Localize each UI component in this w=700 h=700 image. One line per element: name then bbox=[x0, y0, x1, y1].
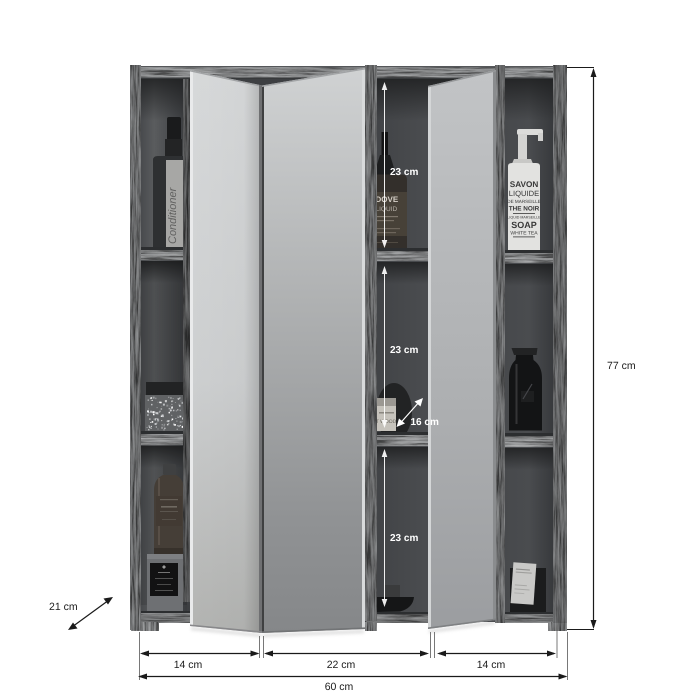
svg-text:SOAP: SOAP bbox=[511, 220, 537, 230]
svg-text:21 cm: 21 cm bbox=[49, 601, 78, 613]
svg-text:77 cm: 77 cm bbox=[607, 360, 636, 372]
svg-text:LIQUIDE: LIQUIDE bbox=[509, 189, 539, 198]
svg-text:14 cm: 14 cm bbox=[174, 659, 203, 671]
svg-text:SAVON: SAVON bbox=[510, 180, 539, 189]
svg-text:WHITE TEA: WHITE TEA bbox=[510, 231, 538, 237]
svg-text:16 cm: 16 cm bbox=[411, 417, 439, 428]
svg-text:THE NOIR: THE NOIR bbox=[509, 206, 540, 213]
svg-text:Conditioner: Conditioner bbox=[167, 186, 179, 244]
svg-text:23 cm: 23 cm bbox=[390, 345, 418, 356]
svg-text:LIQUID: LIQUID bbox=[376, 206, 398, 213]
svg-text:23 cm: 23 cm bbox=[390, 533, 418, 544]
svg-text:LIQUID MARSEILLE: LIQUID MARSEILLE bbox=[507, 216, 541, 220]
svg-text:23 cm: 23 cm bbox=[390, 167, 418, 178]
svg-text:22 cm: 22 cm bbox=[327, 659, 356, 671]
svg-text:DOVE: DOVE bbox=[376, 195, 399, 204]
svg-text:14 cm: 14 cm bbox=[477, 659, 506, 671]
svg-text:DE MARSEILLE: DE MARSEILLE bbox=[507, 199, 540, 204]
svg-text:60 cm: 60 cm bbox=[325, 681, 354, 693]
